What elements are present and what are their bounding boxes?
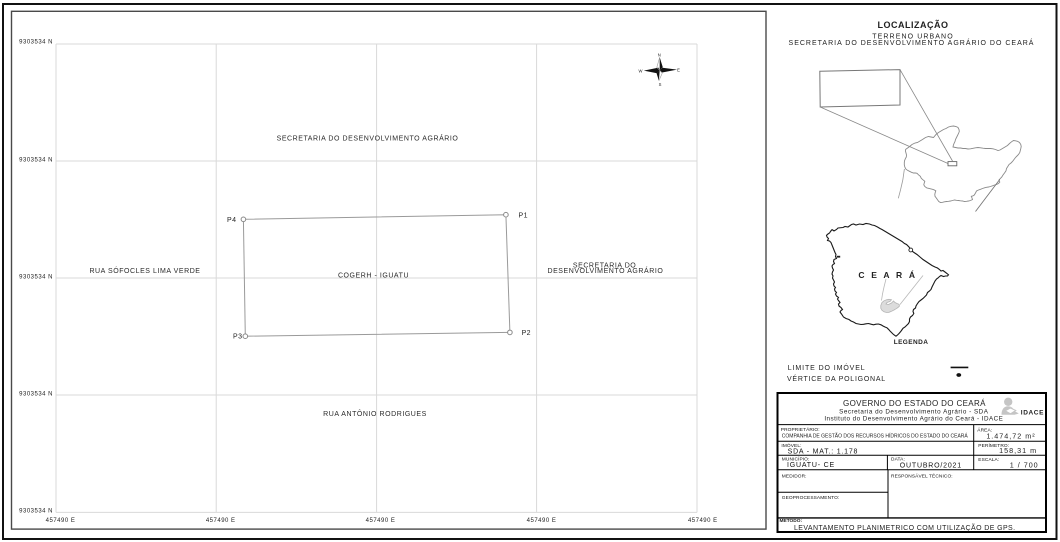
svg-text:COMPANHIA DE GESTÃO DOS RECURS: COMPANHIA DE GESTÃO DOS RECURSOS HÍDRICO… [782, 432, 969, 439]
svg-text:9303534 N: 9303534 N [19, 158, 53, 164]
svg-text:1 / 700: 1 / 700 [1010, 461, 1039, 470]
svg-text:LEGENDA: LEGENDA [894, 339, 929, 346]
svg-text:IGUATU- CE: IGUATU- CE [787, 462, 835, 469]
svg-text:COGERH - IGUATU: COGERH - IGUATU [338, 272, 409, 279]
svg-text:RESPONSÁVEL TÉCNICO:: RESPONSÁVEL TÉCNICO: [891, 473, 953, 480]
svg-text:IDACE: IDACE [1021, 409, 1044, 416]
svg-text:457490 E: 457490 E [688, 518, 718, 524]
svg-text:P2: P2 [522, 330, 531, 337]
svg-text:RUA SÓFOCLES LIMA VERDE: RUA SÓFOCLES LIMA VERDE [89, 266, 200, 275]
svg-text:OUTUBRO/2021: OUTUBRO/2021 [900, 462, 962, 469]
svg-text:Instituto do Desenvolvimento A: Instituto do Desenvolvimento Agrário do … [824, 416, 1003, 423]
svg-text:W: W [639, 68, 643, 73]
svg-text:9303534 N: 9303534 N [19, 275, 53, 281]
svg-text:P1: P1 [519, 213, 528, 220]
svg-text:9303534 N: 9303534 N [19, 509, 53, 515]
svg-text:9303534 N: 9303534 N [19, 40, 53, 46]
svg-text:P4: P4 [227, 217, 236, 224]
svg-text:P3: P3 [233, 334, 242, 341]
svg-text:9303534 N: 9303534 N [19, 392, 53, 398]
svg-text:158,31 m: 158,31 m [999, 446, 1037, 455]
svg-text:457490 E: 457490 E [366, 518, 396, 524]
svg-text:DESENVOLVIMENTO AGRÁRIO: DESENVOLVIMENTO AGRÁRIO [547, 266, 663, 275]
svg-text:S: S [659, 82, 662, 87]
svg-text:SDA - MAT.: 1.178: SDA - MAT.: 1.178 [788, 449, 859, 456]
svg-text:Secretaria do Desenvolvimento: Secretaria do Desenvolvimento Agrário - … [839, 408, 989, 415]
svg-text:GOVERNO DO ESTADO DO CEARÁ: GOVERNO DO ESTADO DO CEARÁ [843, 399, 986, 408]
svg-text:LEVANTAMENTO PLANIMETRICO COM: LEVANTAMENTO PLANIMETRICO COM UTILIZAÇÃO… [794, 523, 1015, 532]
svg-text:MEDIDOR:: MEDIDOR: [782, 473, 807, 479]
svg-text:PROPRIETÁRIO:: PROPRIETÁRIO: [781, 426, 820, 433]
svg-text:SECRETARIA DO DESENVOLVIMENTO: SECRETARIA DO DESENVOLVIMENTO AGRÁRIO [277, 134, 459, 143]
svg-text:457490 E: 457490 E [46, 518, 76, 524]
svg-text:E: E [677, 67, 680, 72]
svg-text:LOCALIZAÇÃO: LOCALIZAÇÃO [878, 20, 949, 30]
svg-text:N: N [658, 53, 661, 58]
svg-text:ESCALA:: ESCALA: [978, 457, 999, 463]
svg-text:VÉRTICE DA POLIGONAL: VÉRTICE DA POLIGONAL [787, 374, 886, 383]
svg-text:C E A R Á: C E A R Á [858, 270, 917, 280]
svg-text:457490 E: 457490 E [527, 518, 557, 524]
svg-text:SECRETARIA DO DESENVOLVIMENTO: SECRETARIA DO DESENVOLVIMENTO AGRÁRIO DO… [789, 38, 1035, 47]
svg-text:457490 E: 457490 E [206, 518, 236, 524]
svg-text:GEOPROCESSAMENTO:: GEOPROCESSAMENTO: [782, 495, 840, 501]
svg-text:1.474,72 m²: 1.474,72 m² [986, 432, 1035, 441]
svg-text:RUA ANTÔNIO RODRIGUES: RUA ANTÔNIO RODRIGUES [323, 409, 427, 418]
svg-text:LIMITE DO IMÓVEL: LIMITE DO IMÓVEL [788, 363, 866, 372]
